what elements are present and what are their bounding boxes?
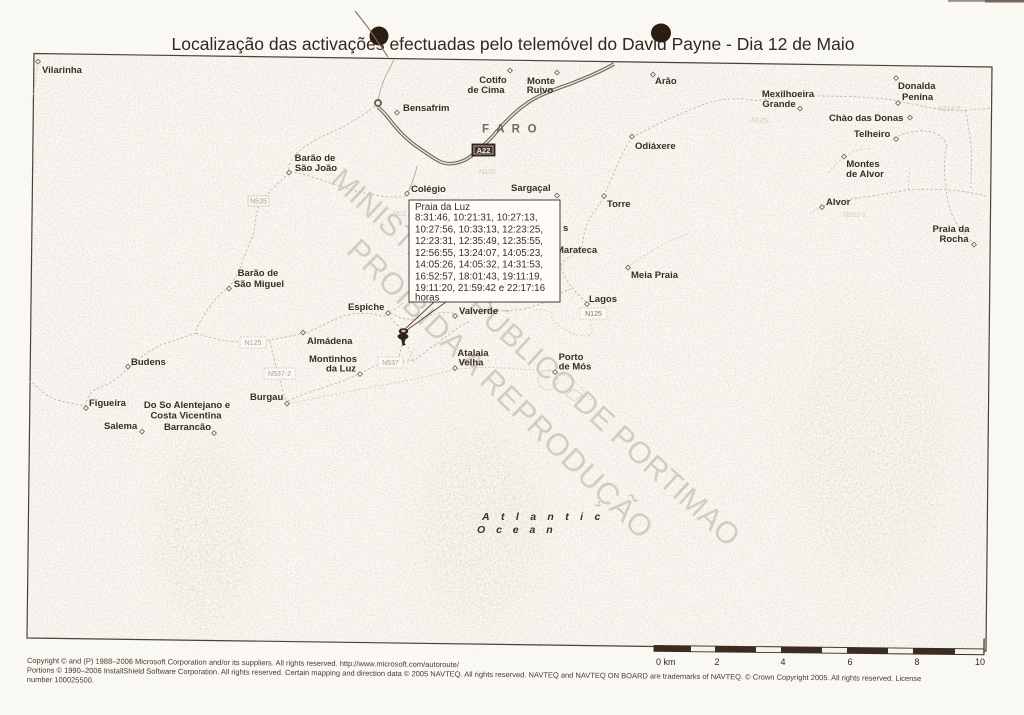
svg-text:Do So Alentejano e: Do So Alentejano e xyxy=(144,400,230,411)
svg-text:São João: São João xyxy=(295,163,337,174)
svg-text:Valverde: Valverde xyxy=(459,306,498,317)
svg-text:10: 10 xyxy=(975,657,985,667)
svg-text:8: 8 xyxy=(914,657,919,667)
svg-text:N537-2: N537-2 xyxy=(268,371,291,378)
svg-text:6: 6 xyxy=(847,657,852,667)
svg-text:de Mós: de Mós xyxy=(559,362,592,373)
svg-text:horas: horas xyxy=(415,293,440,304)
svg-text:Odiáxere: Odiáxere xyxy=(635,141,676,152)
svg-text:Barão de: Barão de xyxy=(238,268,279,279)
svg-text:number 100025500.: number 100025500. xyxy=(27,675,94,685)
svg-text:0 km: 0 km xyxy=(656,657,676,667)
svg-text:Almádena: Almádena xyxy=(307,336,353,347)
svg-text:Arão: Arão xyxy=(655,76,677,87)
svg-text:Barrancão: Barrancão xyxy=(164,422,211,433)
svg-text:N114-2: N114-2 xyxy=(938,106,961,113)
svg-text:A22: A22 xyxy=(477,146,491,155)
svg-text:N125: N125 xyxy=(245,340,262,347)
svg-text:Budens: Budens xyxy=(131,357,166,368)
svg-text:Donalda: Donalda xyxy=(898,81,936,92)
svg-text:Localização das activações efe: Localização das activações efectuadas pe… xyxy=(172,34,855,54)
svg-text:Figueira: Figueira xyxy=(89,398,127,409)
svg-text:Espiche: Espiche xyxy=(348,302,384,313)
svg-text:Salema: Salema xyxy=(104,421,138,432)
svg-text:s: s xyxy=(563,223,568,234)
svg-text:da Luz: da Luz xyxy=(326,364,356,375)
svg-text:N120: N120 xyxy=(479,169,496,176)
svg-text:Chào das Donas: Chào das Donas xyxy=(829,113,903,124)
svg-text:de Cima: de Cima xyxy=(468,85,506,96)
svg-text:Sargaçal: Sargaçal xyxy=(511,183,551,194)
svg-text:N537: N537 xyxy=(382,360,399,367)
svg-text:N531-1: N531-1 xyxy=(843,212,866,219)
svg-text:Alvor: Alvor xyxy=(826,197,851,208)
svg-text:Burgau: Burgau xyxy=(250,392,283,403)
svg-text:Atlantic: Atlantic xyxy=(481,511,612,523)
svg-text:Velha: Velha xyxy=(459,358,485,369)
svg-text:Torre: Torre xyxy=(607,199,631,210)
svg-text:N535: N535 xyxy=(250,199,267,206)
svg-text:2: 2 xyxy=(714,657,719,667)
svg-text:16:52:57, 18:01:43, 19:11:19,: 16:52:57, 18:01:43, 19:11:19, xyxy=(415,272,542,283)
svg-text:de Alvor: de Alvor xyxy=(846,169,884,180)
svg-text:12:56:55, 13:24:07, 14:05:23,: 12:56:55, 13:24:07, 14:05:23, xyxy=(415,248,543,259)
svg-text:Meia Praia: Meia Praia xyxy=(631,270,679,281)
svg-text:Colégio: Colégio xyxy=(411,184,446,195)
svg-text:Grande: Grande xyxy=(762,99,795,110)
svg-text:Penina: Penina xyxy=(902,92,934,103)
svg-text:Vilarinha: Vilarinha xyxy=(42,65,83,76)
svg-text:Praia da Luz: Praia da Luz xyxy=(415,202,470,213)
svg-text:N53: N53 xyxy=(393,211,406,218)
svg-text:São Miguel: São Miguel xyxy=(234,279,284,290)
svg-text:N125: N125 xyxy=(585,311,602,318)
svg-text:N125: N125 xyxy=(751,117,768,125)
svg-text:Bensafrim: Bensafrim xyxy=(403,103,449,114)
svg-text:F A R O: F A R O xyxy=(482,124,539,136)
svg-text:Ocean: Ocean xyxy=(477,524,564,536)
svg-text:10:27:56, 10:33:13, 12:23:25,: 10:27:56, 10:33:13, 12:23:25, xyxy=(415,224,543,235)
svg-text:Marateca: Marateca xyxy=(556,245,598,256)
svg-text:Rocha: Rocha xyxy=(939,234,969,245)
svg-text:Lagos: Lagos xyxy=(589,294,617,305)
svg-text:12:23:31, 12:35:49, 12:35:55,: 12:23:31, 12:35:49, 12:35:55, xyxy=(415,236,543,247)
svg-text:Ruivo: Ruivo xyxy=(527,85,554,96)
svg-text:Costa Vicentina: Costa Vicentina xyxy=(150,411,222,422)
svg-text:Telheiro: Telheiro xyxy=(854,129,890,140)
svg-text:14:05:26, 14:05:32, 14:31:53,: 14:05:26, 14:05:32, 14:31:53, xyxy=(415,260,543,271)
svg-text:4: 4 xyxy=(780,657,785,667)
svg-text:8:31:46, 10:21:31, 10:27:13,: 8:31:46, 10:21:31, 10:27:13, xyxy=(415,213,538,224)
